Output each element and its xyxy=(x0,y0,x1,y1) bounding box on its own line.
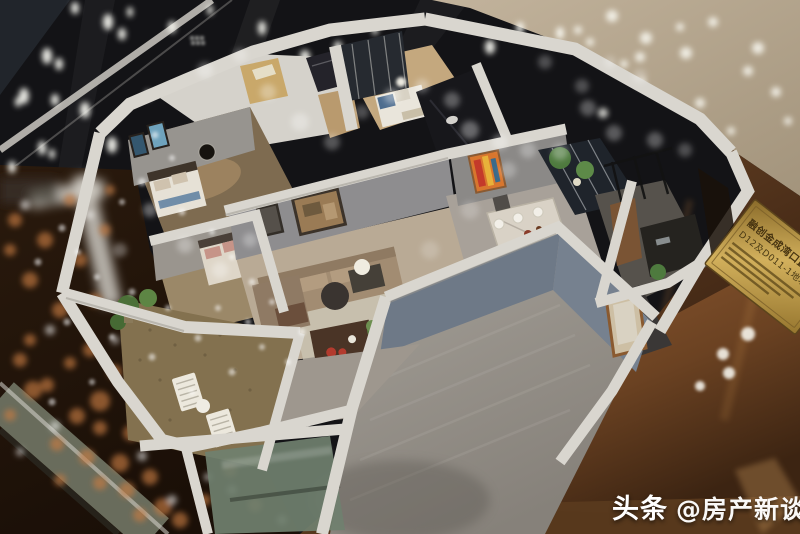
watermark-brand: 头条 xyxy=(612,487,668,526)
round-side-table xyxy=(321,282,349,310)
abstract-art xyxy=(469,150,506,192)
scene-canvas: 融创金成湾口置业 D12及D011-1地块 xyxy=(0,0,800,534)
watermark-handle: @房产新谈 xyxy=(676,490,800,526)
ceiling-lamp xyxy=(396,77,406,87)
indoor-plant xyxy=(576,161,594,179)
photo-apartment-model: 融创金成湾口置业 D12及D011-1地块 头条 @房产新谈 xyxy=(0,0,800,534)
garden-lamp xyxy=(573,178,581,186)
side-table xyxy=(196,399,210,413)
watermark: 头条 @房产新谈 xyxy=(612,487,800,526)
counter-plant xyxy=(650,264,666,280)
egg-lamp xyxy=(354,259,370,275)
